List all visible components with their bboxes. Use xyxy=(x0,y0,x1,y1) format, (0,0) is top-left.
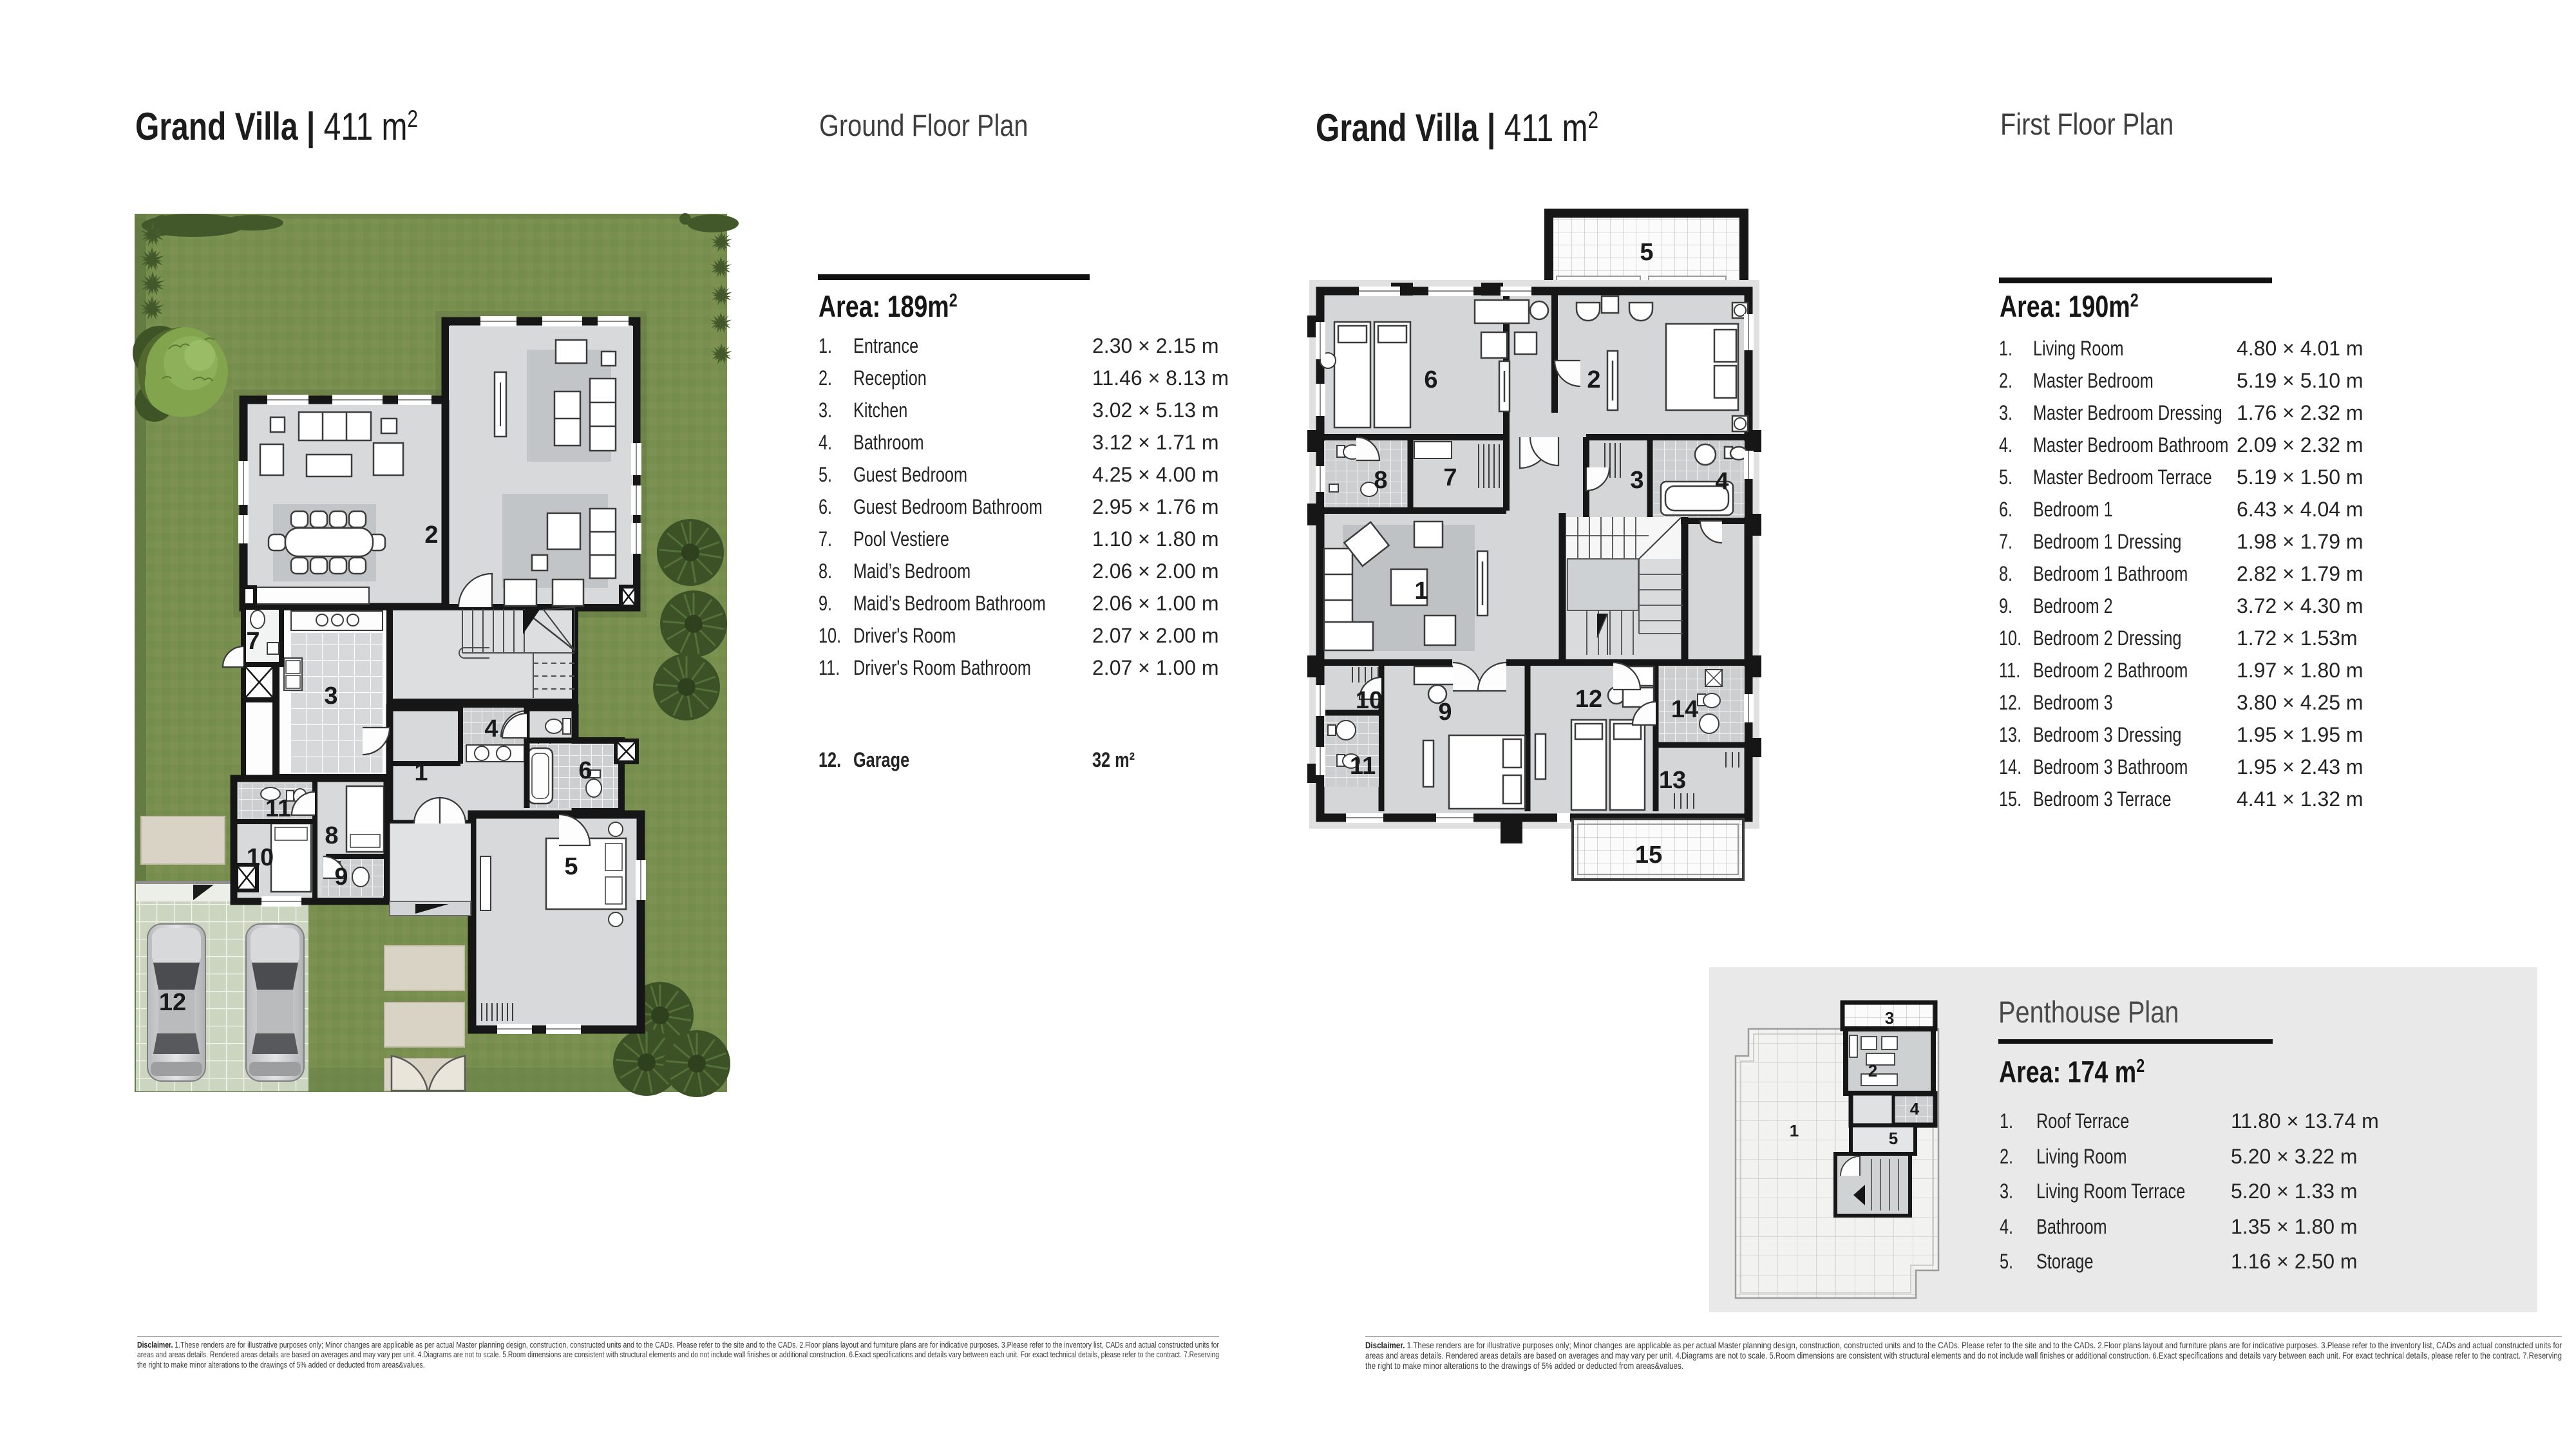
svg-text:8: 8 xyxy=(1374,467,1387,494)
svg-text:12: 12 xyxy=(159,989,186,1016)
svg-text:3: 3 xyxy=(1630,467,1643,494)
svg-text:11: 11 xyxy=(265,795,291,822)
svg-text:15: 15 xyxy=(1635,842,1662,869)
svg-text:5: 5 xyxy=(564,853,578,880)
svg-text:4: 4 xyxy=(1910,1099,1920,1118)
svg-text:12: 12 xyxy=(1575,686,1602,713)
svg-text:11: 11 xyxy=(1350,753,1376,780)
svg-text:3: 3 xyxy=(324,683,337,710)
svg-text:9: 9 xyxy=(1438,699,1452,726)
svg-text:6: 6 xyxy=(1424,366,1437,393)
svg-text:4: 4 xyxy=(484,715,498,742)
svg-text:14: 14 xyxy=(1671,696,1698,723)
svg-text:5: 5 xyxy=(1889,1129,1898,1148)
svg-text:8: 8 xyxy=(325,822,338,849)
svg-text:7: 7 xyxy=(246,628,260,655)
svg-text:4: 4 xyxy=(1715,468,1728,495)
svg-text:10: 10 xyxy=(247,844,274,871)
svg-text:1: 1 xyxy=(1414,578,1428,605)
svg-text:2: 2 xyxy=(1868,1061,1877,1080)
svg-text:9: 9 xyxy=(334,863,348,890)
svg-text:3: 3 xyxy=(1885,1008,1894,1028)
svg-text:2: 2 xyxy=(424,522,438,549)
svg-text:1: 1 xyxy=(1790,1121,1799,1140)
svg-text:2: 2 xyxy=(1587,366,1600,393)
svg-text:1: 1 xyxy=(414,759,428,786)
svg-text:6: 6 xyxy=(578,757,592,784)
svg-text:10: 10 xyxy=(1356,687,1383,714)
svg-text:5: 5 xyxy=(1640,239,1653,266)
svg-text:7: 7 xyxy=(1443,464,1457,491)
svg-text:13: 13 xyxy=(1659,767,1686,794)
